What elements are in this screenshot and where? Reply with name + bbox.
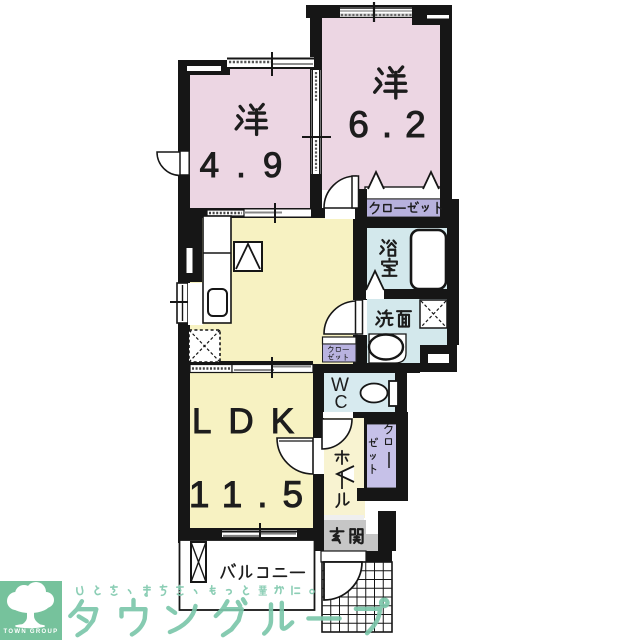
svg-text:11.5: 11.5 [189, 474, 318, 515]
svg-text:TOWN GROUP: TOWN GROUP [4, 629, 59, 635]
svg-text:LDK: LDK [192, 402, 311, 441]
svg-text:6.2: 6.2 [348, 104, 438, 145]
svg-text:4.9: 4.9 [200, 146, 300, 185]
svg-text:C: C [335, 392, 348, 412]
